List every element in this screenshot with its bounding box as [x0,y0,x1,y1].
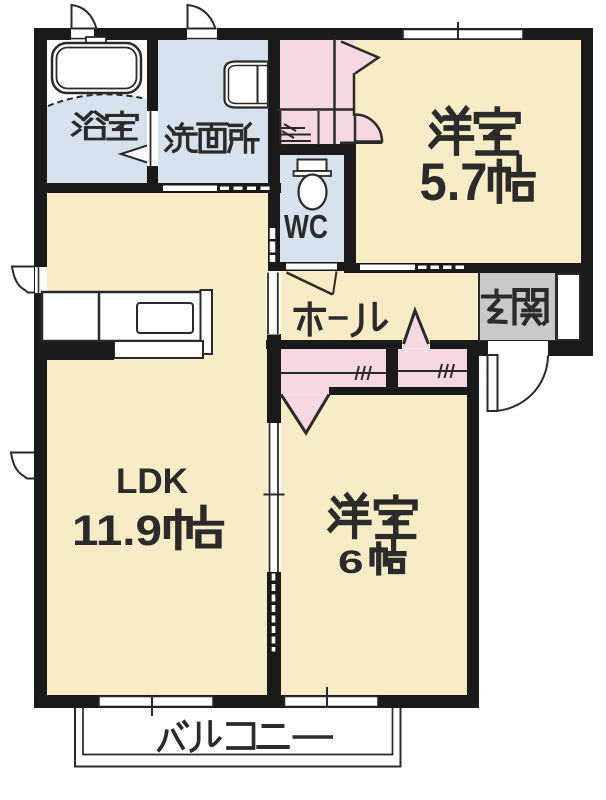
svg-text:5.7: 5.7 [420,153,488,212]
svg-text:WC: WC [284,208,328,245]
svg-text:6: 6 [338,545,364,581]
svg-text:11.9: 11.9 [72,508,162,555]
svg-text:LDK: LDK [116,462,188,501]
